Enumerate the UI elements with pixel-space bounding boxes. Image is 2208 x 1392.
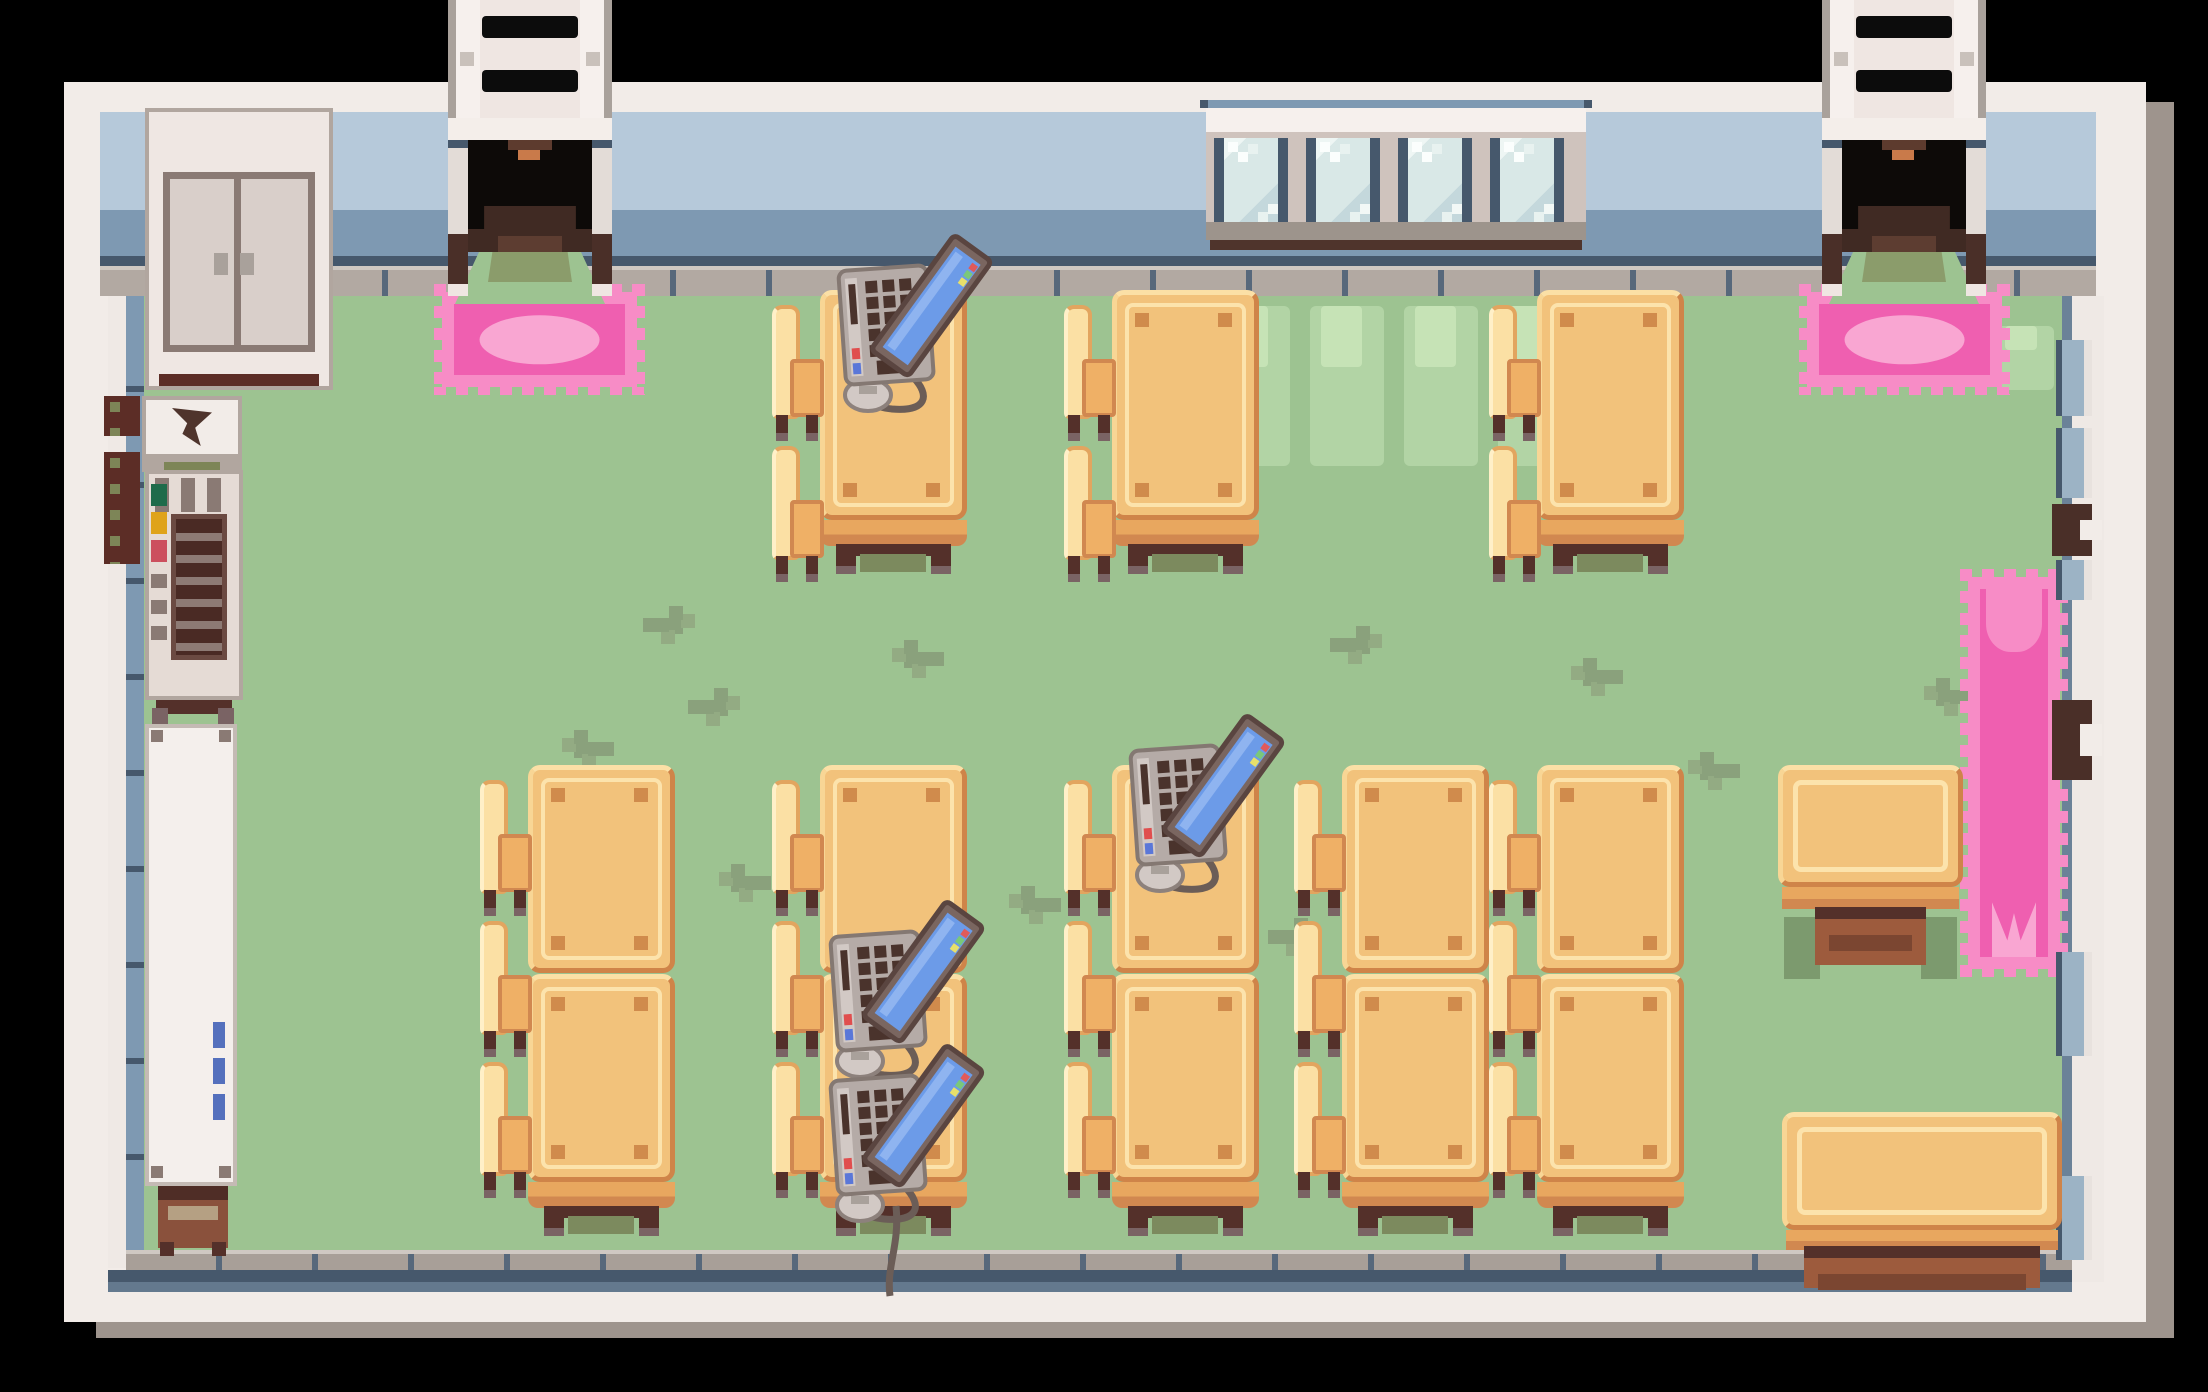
chair-seat <box>790 1116 824 1174</box>
chair-seat <box>1312 975 1346 1033</box>
chair-legs <box>1298 1172 1342 1198</box>
chair[interactable] <box>1489 305 1539 439</box>
desk-shadow <box>1152 554 1218 572</box>
desk-leg <box>639 1206 659 1236</box>
wall-pane-icon <box>2056 560 2092 600</box>
wardrobe[interactable] <box>145 108 333 390</box>
chair-legs <box>1298 1031 1342 1057</box>
desk-leg <box>1128 1206 1148 1236</box>
door-steps-icon <box>468 206 592 252</box>
baseboard-top <box>100 266 2096 296</box>
laptop-icon[interactable] <box>826 1056 946 1234</box>
desk[interactable] <box>528 765 675 973</box>
doorway-cap <box>448 284 468 296</box>
window-pane <box>1306 138 1380 222</box>
chair-seat <box>1312 1116 1346 1174</box>
rug-oval-icon <box>479 315 600 364</box>
window-sill <box>1206 222 1586 240</box>
floor-scuff-icon <box>1597 670 1611 684</box>
desk-legs <box>1537 544 1684 580</box>
chair-seat <box>498 975 532 1033</box>
floor-scuff-icon <box>1280 930 1294 944</box>
bench-top <box>1782 1112 2062 1230</box>
doormat-rug <box>1807 292 2002 387</box>
window-shadow <box>1210 240 1582 250</box>
chair-legs <box>776 1172 820 1198</box>
chair-legs <box>1068 556 1112 582</box>
bottom-trim-slate <box>108 1282 2072 1292</box>
doorway[interactable] <box>468 140 592 252</box>
doormat-rug <box>442 292 637 387</box>
desk[interactable] <box>1112 974 1259 1182</box>
desk-leg <box>1648 544 1668 574</box>
desk-legs <box>1342 1206 1489 1242</box>
tv-screen-icon <box>172 408 212 446</box>
window-bank <box>1206 100 1586 250</box>
floor-light-patch <box>1404 306 1478 466</box>
stair-mark-icon <box>1834 52 1848 66</box>
chair[interactable] <box>1294 780 1344 914</box>
wall-top-dark <box>100 210 2096 256</box>
wardrobe-doors[interactable] <box>163 172 315 352</box>
wall-pane-icon <box>2056 340 2092 416</box>
floor-light-patch <box>1310 306 1384 466</box>
bottom-trim-navy <box>108 1270 2072 1282</box>
desk-leg <box>1553 1206 1573 1236</box>
chair[interactable] <box>1064 921 1114 1055</box>
doorway-post <box>448 140 468 266</box>
chair-seat <box>1507 500 1541 558</box>
chair-seat <box>790 975 824 1033</box>
table-base <box>1815 907 1926 965</box>
doorway-cap <box>592 284 612 296</box>
desk-leg <box>836 544 856 574</box>
chair[interactable] <box>1064 446 1114 580</box>
wall-latch-icon <box>2052 504 2092 556</box>
chair-seat <box>498 834 532 892</box>
chair-seat <box>1507 975 1541 1033</box>
floor-scuff-icon <box>655 618 669 632</box>
chair[interactable] <box>480 1062 530 1196</box>
wall-cabinet-icon <box>104 452 140 564</box>
desk[interactable] <box>1112 290 1259 520</box>
laptop-icon[interactable] <box>834 246 954 424</box>
chair[interactable] <box>1489 780 1539 914</box>
doorway[interactable] <box>1842 140 1966 252</box>
stool[interactable] <box>158 1186 228 1248</box>
floor-scuff-icon <box>745 876 759 890</box>
chair[interactable] <box>772 1062 822 1196</box>
chair-legs <box>1493 890 1537 916</box>
chair-legs <box>1493 415 1537 441</box>
floor-scuff-icon <box>1714 764 1728 778</box>
stair-mark-icon <box>460 52 474 66</box>
wardrobe-base <box>159 374 319 386</box>
wall-top-light <box>100 112 2096 210</box>
desk-leg <box>544 1206 564 1236</box>
window-frame <box>1206 132 1586 222</box>
stair-step-icon <box>1856 70 1952 92</box>
chair[interactable] <box>772 446 822 580</box>
desk-leg <box>1553 544 1573 574</box>
desk[interactable] <box>1342 765 1489 973</box>
desk[interactable] <box>528 974 675 1182</box>
stair-step-icon <box>482 16 578 38</box>
window-pane <box>1398 138 1472 222</box>
chair-legs <box>776 1031 820 1057</box>
chair-seat <box>1507 1116 1541 1174</box>
stair-step-icon <box>482 70 578 92</box>
window-top-trim <box>1200 100 1592 108</box>
door-steps-icon <box>1842 206 1966 252</box>
desk-leg <box>1358 1206 1378 1236</box>
game-viewport[interactable] <box>0 0 2208 1392</box>
floor-scuff-icon <box>1342 638 1356 652</box>
window-pane <box>1490 138 1564 222</box>
desk-side <box>820 520 967 546</box>
desk-shadow <box>1382 1216 1448 1234</box>
chair-legs <box>776 415 820 441</box>
floor-scuff-icon <box>918 652 932 666</box>
desk-shadow <box>568 1216 634 1234</box>
desk-side <box>1537 1182 1684 1208</box>
desk-legs <box>1112 1206 1259 1242</box>
desk-shadow <box>1577 554 1643 572</box>
desk[interactable] <box>1537 765 1684 973</box>
bookshelf[interactable] <box>145 470 243 700</box>
chair-legs <box>776 556 820 582</box>
window-pane <box>1214 138 1288 222</box>
desk-leg <box>1128 544 1148 574</box>
wall-cabinet-icon <box>104 396 140 436</box>
table-shadow <box>1921 917 1957 979</box>
chair-legs <box>484 1031 528 1057</box>
bench[interactable] <box>1782 1112 2062 1290</box>
table-side <box>1782 887 1959 909</box>
chair-seat <box>790 834 824 892</box>
chair-legs <box>1298 890 1342 916</box>
chair[interactable] <box>1064 305 1114 439</box>
bookshelf-base <box>150 700 238 726</box>
chair-legs <box>1493 556 1537 582</box>
desk-shadow <box>1577 1216 1643 1234</box>
laptop-icon[interactable] <box>1126 726 1246 904</box>
chair[interactable] <box>1489 1062 1539 1196</box>
chair-seat <box>1082 1116 1116 1174</box>
desk-shadow <box>860 554 926 572</box>
desk-side <box>1342 1182 1489 1208</box>
chair-seat <box>1082 834 1116 892</box>
chair-seat <box>1082 359 1116 417</box>
rug-arch-icon <box>1986 589 2041 652</box>
chair[interactable] <box>1064 1062 1114 1196</box>
tv-unit[interactable] <box>142 396 242 458</box>
wall-trim-line <box>100 256 2096 266</box>
chair-seat <box>1082 975 1116 1033</box>
window-header <box>1206 108 1586 132</box>
doorway-cap <box>1966 284 1986 296</box>
chair[interactable] <box>480 780 530 914</box>
shelf-ladder-icon <box>171 514 227 660</box>
chair[interactable] <box>1064 780 1114 914</box>
wall-left-face <box>108 296 126 1268</box>
chair-seat <box>1507 834 1541 892</box>
wall-pane-icon <box>2056 428 2092 498</box>
staircase[interactable] <box>448 0 612 118</box>
floor-scuff-icon <box>1035 898 1049 912</box>
chair[interactable] <box>772 921 822 1055</box>
chair-legs <box>484 890 528 916</box>
stair-mark-icon <box>1960 52 1974 66</box>
desk[interactable] <box>1537 974 1684 1182</box>
chair-legs <box>1068 1031 1112 1057</box>
floor-scuff-icon <box>588 742 602 756</box>
desk-legs <box>528 1206 675 1242</box>
chair-seat <box>498 1116 532 1174</box>
side-table[interactable] <box>1778 765 1963 983</box>
chair[interactable] <box>1489 446 1539 580</box>
chair-legs <box>1068 1172 1112 1198</box>
chair-legs <box>1068 890 1112 916</box>
chair[interactable] <box>1294 1062 1344 1196</box>
chair-seat <box>1082 500 1116 558</box>
table-top <box>1778 765 1963 887</box>
desk-shadow <box>1152 1216 1218 1234</box>
desk[interactable] <box>1342 974 1489 1182</box>
rug-oval-icon <box>1844 315 1965 364</box>
desk-side <box>1112 1182 1259 1208</box>
chair-legs <box>776 890 820 916</box>
bench-base <box>1804 1246 2039 1288</box>
desk-leg <box>1648 1206 1668 1236</box>
desk-leg <box>931 544 951 574</box>
stair-mark-icon <box>586 52 600 66</box>
desk-legs <box>1112 544 1259 580</box>
runner-rug <box>1968 577 2060 969</box>
chair-legs <box>484 1172 528 1198</box>
chair-seat <box>1507 359 1541 417</box>
desk-side <box>528 1182 675 1208</box>
desk-leg <box>1223 1206 1243 1236</box>
desk-side <box>1112 520 1259 546</box>
doorway-post <box>592 140 612 266</box>
staircase[interactable] <box>1822 0 1986 118</box>
desk-leg <box>1223 544 1243 574</box>
wall-pane-icon <box>2056 952 2092 1056</box>
desk-side <box>1537 520 1684 546</box>
doorway-post <box>1966 140 1986 266</box>
door-sign-icon <box>1882 140 1926 150</box>
desk[interactable] <box>1537 290 1684 520</box>
chair[interactable] <box>1294 921 1344 1055</box>
desk-legs <box>820 544 967 580</box>
door-sign-icon <box>508 140 552 150</box>
chair-seat <box>790 359 824 417</box>
floor-scuff-icon <box>700 700 714 714</box>
blue-marker-scribble <box>213 1022 225 1126</box>
stair-step-icon <box>1856 16 1952 38</box>
chair-seat <box>1312 834 1346 892</box>
chair[interactable] <box>772 780 822 914</box>
chair-legs <box>1068 415 1112 441</box>
desk-legs <box>1537 1206 1684 1242</box>
chair[interactable] <box>480 921 530 1055</box>
desk-leg <box>1453 1206 1473 1236</box>
chair[interactable] <box>1489 921 1539 1055</box>
chair[interactable] <box>772 305 822 439</box>
doorway-cap <box>1822 284 1842 296</box>
whiteboard-divider[interactable] <box>145 724 237 1186</box>
wall-latch-icon <box>2052 700 2092 780</box>
chair-legs <box>1493 1031 1537 1057</box>
baseboard-bottom <box>126 1250 2072 1270</box>
doorway-post <box>1822 140 1842 266</box>
chair-legs <box>1493 1172 1537 1198</box>
chair-seat <box>790 500 824 558</box>
